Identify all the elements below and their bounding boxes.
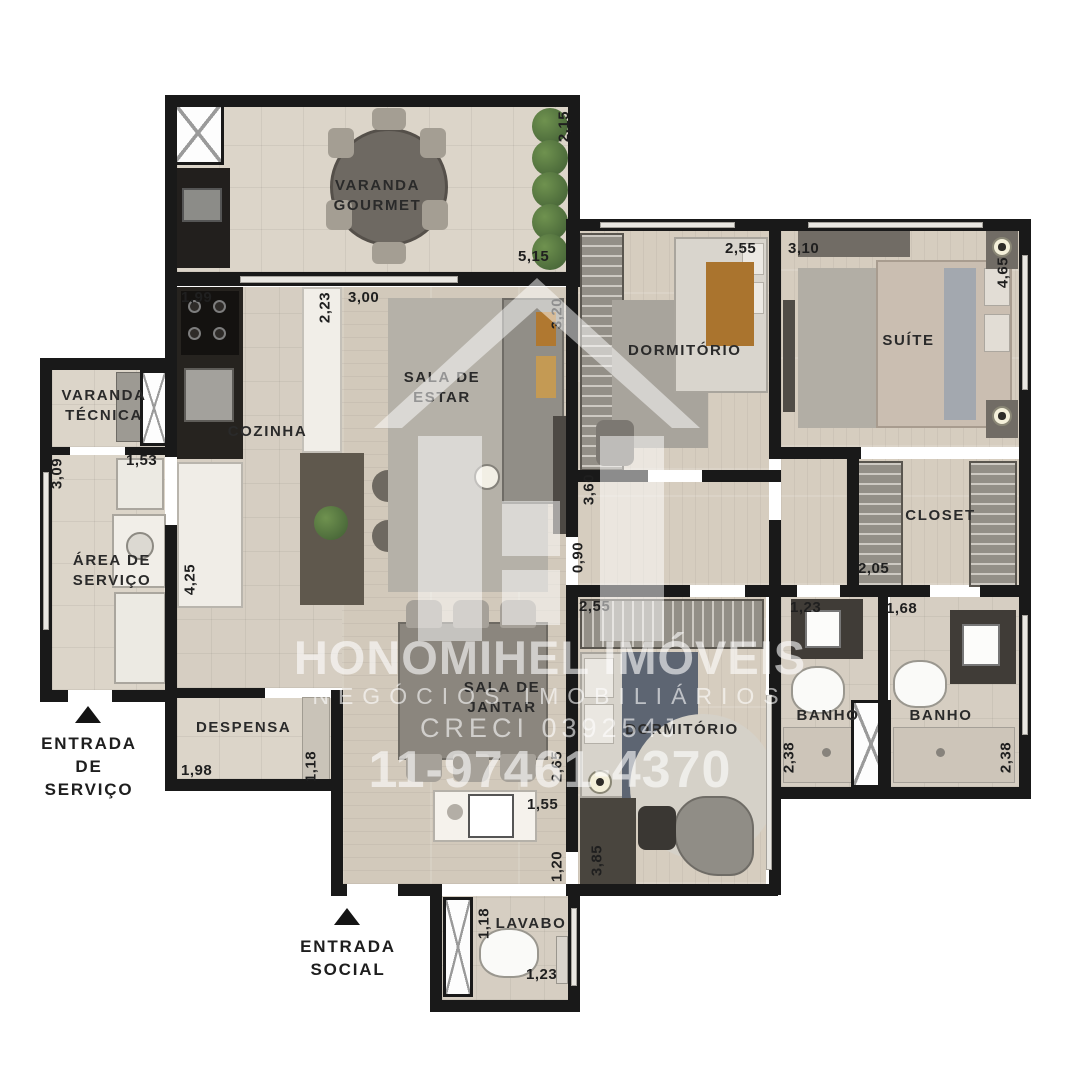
bed-throw	[706, 262, 754, 346]
tv-panel	[783, 300, 795, 412]
floor-hall	[578, 482, 769, 585]
wall	[566, 470, 648, 482]
wall	[165, 95, 580, 107]
dimension-banho2-depth: 2,38	[998, 738, 1015, 778]
dimension-hall-width: 1,20	[549, 847, 566, 887]
wall	[980, 585, 1031, 597]
room-label-suite: SUÍTE	[866, 331, 951, 351]
shaft-x-icon	[172, 101, 224, 165]
room-label-dormitorio-1: DORMITÓRIO	[628, 341, 740, 361]
room-label-banho-1: BANHO	[795, 706, 861, 726]
burner-icon	[188, 327, 201, 340]
wall	[566, 230, 578, 482]
entrance-label-social: ENTRADA SOCIAL	[298, 936, 398, 982]
drain-icon	[822, 748, 831, 757]
room-label-banho-2: BANHO	[906, 706, 976, 726]
dimension-despensa-depth: 1,18	[303, 747, 320, 787]
dimension-sala-depth: 3,20	[549, 294, 566, 334]
entrance-arrow-icon	[334, 908, 360, 925]
wall	[430, 884, 442, 1012]
chair	[328, 128, 354, 158]
entrance-arrow-icon	[75, 706, 101, 723]
cushion	[536, 356, 556, 398]
lamp-icon	[588, 770, 612, 794]
entrance-label-servico: ENTRADA DE SERVIÇO	[30, 733, 148, 802]
dimension-banho1-width: 1,23	[790, 599, 821, 616]
dimension-varanda-width: 5,15	[518, 248, 549, 265]
wall	[165, 525, 177, 790]
pillow	[984, 314, 1010, 352]
pillow	[584, 704, 614, 744]
dimension-sala-width: 3,00	[348, 289, 379, 306]
shaft-x-icon	[443, 897, 473, 997]
room-label-dormitorio-2: DORMITÓRIO	[616, 720, 748, 740]
sink	[962, 624, 1000, 666]
window	[808, 222, 983, 228]
wall	[40, 358, 170, 370]
window	[1022, 615, 1028, 735]
wall	[578, 585, 690, 597]
sink	[556, 936, 568, 984]
room-label-area-servico: ÁREA DE SERVIÇO	[62, 551, 162, 590]
chair	[372, 242, 406, 264]
room-label-despensa: DESPENSA	[196, 718, 291, 738]
chair	[500, 600, 536, 628]
window	[240, 276, 458, 283]
plant-icon	[314, 506, 348, 540]
wall	[769, 219, 781, 459]
wall	[40, 690, 68, 702]
dimension-hall-opening: 0,90	[570, 538, 587, 578]
wall	[165, 688, 265, 698]
window	[1022, 255, 1028, 390]
dimension-dorm1-width: 2,55	[725, 240, 756, 257]
dimension-closet-width: 2,05	[858, 560, 889, 577]
dimension-tv-wall: 3,60	[581, 470, 598, 510]
chair	[420, 128, 446, 158]
wall	[766, 787, 1031, 799]
window	[43, 472, 49, 630]
wall	[112, 690, 170, 702]
dimension-dorm2-depth: 3,85	[589, 841, 606, 881]
room-label-sala-jantar: SALA DE JANTAR	[452, 678, 552, 717]
dimension-varanda-depth: 2,15	[556, 107, 573, 147]
wall	[165, 286, 177, 457]
wall	[702, 470, 781, 482]
gourmet-sink	[182, 188, 222, 222]
dimension-banho2-width: 1,68	[886, 600, 917, 617]
burner-icon	[213, 300, 226, 313]
dimension-banho1-depth: 2,38	[781, 738, 798, 778]
chair	[500, 754, 536, 782]
burner-icon	[213, 327, 226, 340]
wall	[840, 585, 880, 597]
wall	[331, 690, 343, 896]
wall	[566, 884, 578, 896]
room-label-varanda-gourmet: VARANDA GOURMET	[290, 176, 465, 215]
room-label-cozinha: COZINHA	[225, 422, 310, 442]
plant-icon	[532, 172, 568, 208]
dimension-jantar-depth: 2,65	[549, 747, 566, 787]
room-label-closet: CLOSET	[898, 506, 983, 526]
room-label-sala-estar: SALA DE ESTAR	[398, 368, 486, 407]
room-label-lavabo: LAVABO	[492, 914, 570, 934]
dimension-wing-depth: 3,09	[49, 454, 66, 494]
chair	[453, 754, 489, 782]
dimension-suite-width: 3,10	[788, 240, 819, 257]
dimension-suite-depth: 4,65	[995, 253, 1012, 293]
dimension-servico-width: 1,53	[126, 452, 157, 469]
wall	[331, 884, 347, 896]
dimension-island: 2,23	[317, 288, 334, 328]
chair	[453, 600, 489, 628]
drain-icon	[936, 748, 945, 757]
dimension-kitchen-counter: 1,99	[181, 289, 212, 306]
washbasin	[468, 794, 514, 838]
dimension-hall-cabinet: 1,55	[527, 796, 558, 813]
dimension-servico-depth: 4,25	[182, 560, 199, 600]
window	[571, 908, 577, 986]
wall	[745, 585, 781, 597]
dimension-lavabo-depth: 1,18	[476, 904, 493, 944]
chair	[596, 420, 634, 466]
chair	[406, 600, 442, 628]
tv-console	[553, 416, 566, 534]
dimension-lavabo-width: 1,23	[526, 966, 557, 983]
window	[766, 695, 772, 870]
kitchen-sink	[184, 368, 234, 422]
lamp-icon	[992, 406, 1012, 426]
chair	[406, 754, 442, 782]
wall	[165, 95, 177, 287]
dimension-dorm2-wardrobe: 2,55	[579, 598, 610, 615]
floor-plan-canvas: VARANDA GOURMET COZINHA SALA DE ESTAR DO…	[0, 0, 1080, 1080]
laundry-cabinet	[114, 592, 166, 684]
chair	[372, 108, 406, 130]
wall	[578, 884, 778, 896]
wall	[781, 585, 797, 597]
dimension-despensa-width: 1,98	[181, 762, 212, 779]
room-label-varanda-tecnica: VARANDA TÉCNICA	[58, 386, 150, 425]
floor-lamp-icon	[474, 464, 500, 490]
floor-hall-suite	[781, 459, 847, 585]
window	[600, 222, 735, 228]
toilet-icon	[893, 660, 947, 708]
wall	[430, 1000, 580, 1012]
desk-chair	[638, 806, 676, 850]
wall	[878, 595, 888, 795]
pillow	[584, 658, 614, 698]
wall	[566, 585, 578, 852]
decor	[447, 804, 463, 820]
